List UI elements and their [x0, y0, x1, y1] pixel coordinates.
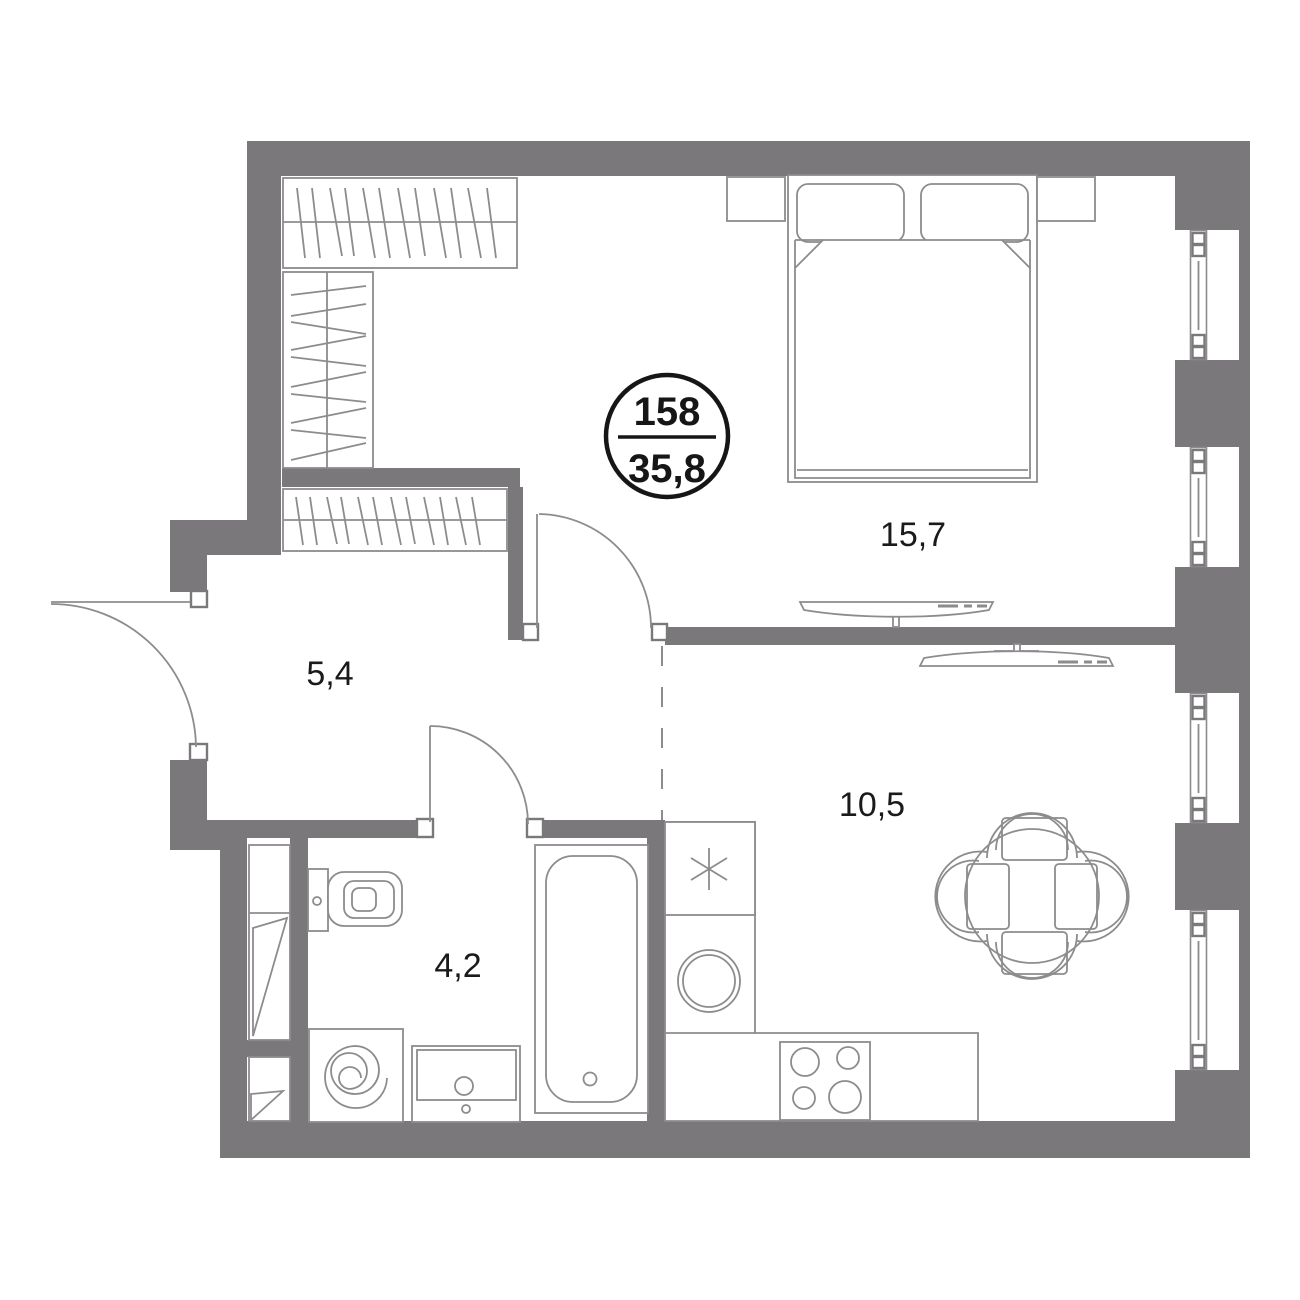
tv-bedroom-icon [800, 602, 993, 627]
wall-closet-nook [282, 468, 520, 487]
chair-west [967, 864, 1009, 929]
pillow-left [797, 184, 904, 242]
wall-bedroom-living-divider [665, 627, 1175, 645]
bed [788, 175, 1037, 482]
wardrobe-top-icon [283, 178, 517, 268]
floor-plan-svg: 15,7 5,4 10,5 4,2 158 35,8 [0, 0, 1300, 1300]
wall-entry-block [170, 520, 281, 555]
wall-hall-bath-west [247, 820, 418, 838]
window-3 [1191, 694, 1207, 823]
tv-bedroom-body [800, 602, 993, 617]
shaft-lower [249, 1057, 290, 1121]
nightstand-left [727, 177, 785, 221]
wall-top [247, 141, 1250, 176]
wall-bath-left [220, 838, 247, 1158]
bathroom-door [417, 726, 543, 837]
wall-hall-bath-east [543, 820, 665, 838]
wall-entry-stub-lower [170, 760, 207, 822]
wall-right-seg-d [1175, 823, 1250, 910]
wall-bottom [220, 1121, 1250, 1158]
chair-east [1055, 864, 1097, 929]
kitchen-living-area-label: 10,5 [839, 786, 905, 824]
kitchen-furniture [665, 644, 1129, 1121]
doors [51, 514, 667, 837]
vanity-sink-icon [412, 1046, 520, 1122]
nightstand-right [1037, 177, 1095, 221]
wall-bath-kitchen [647, 838, 665, 1121]
tv-living-icon [920, 644, 1113, 666]
wardrobe-hallway-icon [283, 489, 507, 551]
wall-right-corner-block [1175, 1070, 1250, 1158]
bathroom-door-swing-arc [430, 726, 528, 824]
bedroom-area-label: 15,7 [880, 516, 946, 554]
entrance-door [51, 591, 207, 760]
wall-shaft-east [290, 838, 308, 1121]
bedroom-door [523, 514, 667, 640]
floor-plan: 15,7 5,4 10,5 4,2 158 35,8 [0, 0, 1300, 1300]
blanket [795, 240, 1030, 478]
window-2 [1191, 448, 1207, 567]
window-4 [1191, 911, 1207, 1070]
stove-icon [780, 1042, 870, 1120]
dining-table-with-chairs [935, 813, 1128, 979]
hallway-furniture [283, 489, 507, 551]
bathroom-area-label: 4,2 [434, 947, 481, 985]
hallway-area-label: 5,4 [306, 655, 353, 693]
wall-right-seg-c [1175, 567, 1250, 693]
wall-right-seg-b [1175, 360, 1250, 447]
wall-left-upper [247, 176, 281, 520]
wardrobe-left-icon [283, 272, 373, 468]
wall-right-seg-a [1175, 176, 1250, 230]
shaft-upper [249, 845, 290, 1040]
fridge-icon [665, 822, 755, 915]
wall-hallway-east [508, 487, 523, 640]
wall-right-outer-strip [1239, 141, 1250, 1158]
window-1 [1191, 231, 1207, 360]
unit-badge: 158 35,8 [606, 375, 728, 497]
toilet-icon [308, 869, 402, 931]
pillow-right [921, 184, 1028, 242]
wall-entry-stub-upper [170, 555, 207, 592]
bedroom-door-swing-arc [539, 514, 651, 628]
entrance-door-swing-arc [51, 604, 196, 747]
bathtub-icon [535, 845, 648, 1113]
tv-living-body [920, 651, 1113, 666]
wall-shaft-separator [247, 1040, 290, 1057]
unit-total-area: 35,8 [628, 447, 706, 491]
unit-number: 158 [634, 390, 701, 434]
washing-machine-icon [309, 1029, 403, 1122]
